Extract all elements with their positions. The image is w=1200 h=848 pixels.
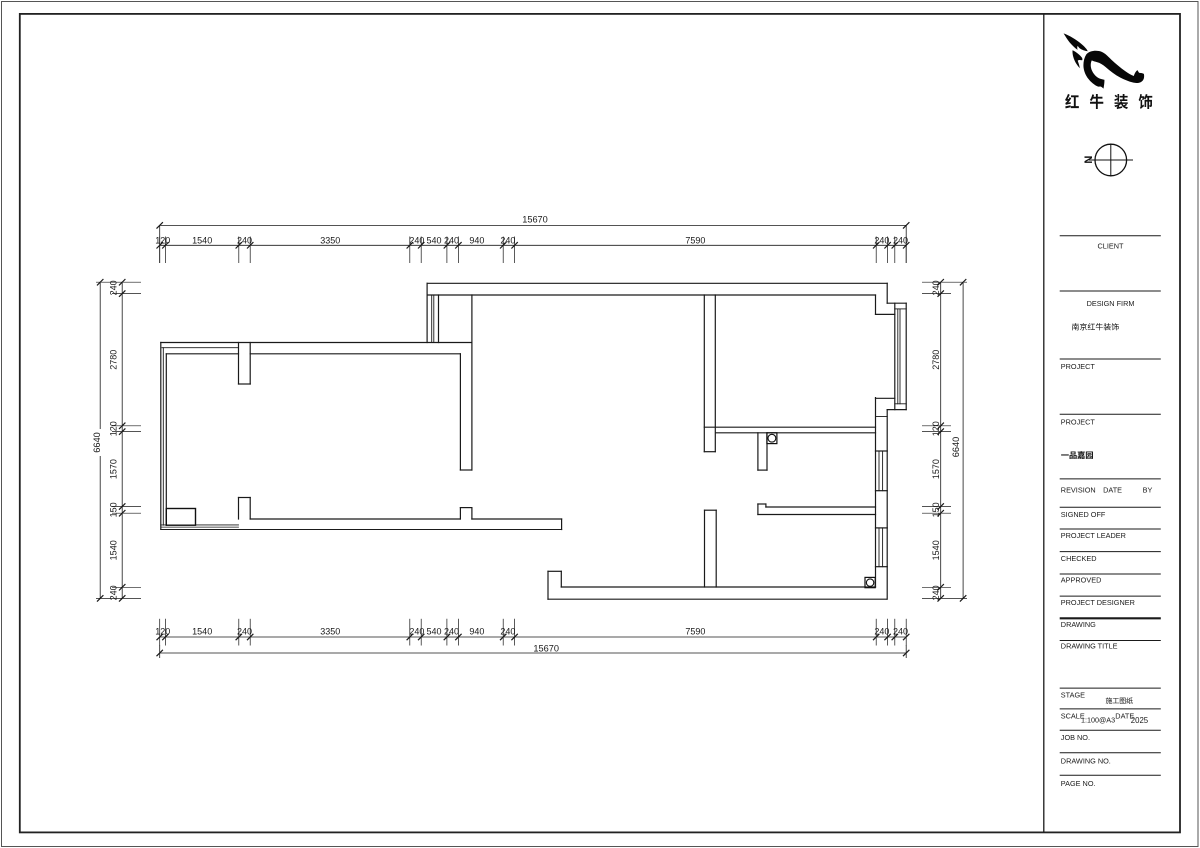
svg-text:15670: 15670 [533, 643, 559, 653]
svg-text:240: 240 [931, 585, 941, 600]
svg-text:7590: 7590 [685, 235, 705, 245]
svg-text:1570: 1570 [931, 459, 941, 479]
svg-text:240: 240 [893, 235, 908, 245]
svg-text:240: 240 [874, 627, 889, 637]
svg-text:BY: BY [1143, 485, 1153, 494]
svg-text:240: 240 [109, 280, 119, 295]
svg-text:REVISION: REVISION [1061, 485, 1096, 494]
svg-text:150: 150 [931, 502, 941, 517]
svg-text:120: 120 [155, 627, 170, 637]
svg-text:DRAWING: DRAWING [1061, 620, 1096, 629]
svg-text:540: 540 [426, 235, 441, 245]
svg-text:7590: 7590 [685, 627, 705, 637]
svg-text:240: 240 [874, 235, 889, 245]
svg-text:1570: 1570 [109, 459, 119, 479]
svg-text:3350: 3350 [320, 235, 340, 245]
svg-text:PROJECT: PROJECT [1061, 362, 1096, 371]
svg-text:2780: 2780 [109, 350, 119, 370]
svg-text:120: 120 [155, 235, 170, 245]
svg-text:1540: 1540 [192, 627, 212, 637]
svg-text:APPROVED: APPROVED [1061, 575, 1102, 584]
svg-text:15670: 15670 [522, 215, 548, 225]
svg-text:CHECKED: CHECKED [1061, 554, 1097, 563]
svg-text:240: 240 [500, 627, 515, 637]
svg-text:JOB NO.: JOB NO. [1061, 733, 1090, 742]
svg-text:1540: 1540 [931, 540, 941, 560]
svg-text:240: 240 [444, 235, 459, 245]
svg-text:120: 120 [931, 421, 941, 436]
svg-text:940: 940 [469, 235, 484, 245]
svg-text:PROJECT DESIGNER: PROJECT DESIGNER [1061, 598, 1135, 607]
svg-text:6640: 6640 [92, 432, 102, 452]
svg-text:DATE: DATE [1103, 485, 1122, 494]
svg-text:DESIGN FIRM: DESIGN FIRM [1087, 299, 1135, 308]
svg-text:240: 240 [893, 627, 908, 637]
svg-text:240: 240 [444, 627, 459, 637]
svg-text:240: 240 [409, 235, 424, 245]
svg-text:1540: 1540 [192, 235, 212, 245]
svg-text:SIGNED OFF: SIGNED OFF [1061, 510, 1106, 519]
svg-text:3350: 3350 [320, 627, 340, 637]
svg-text:DRAWING TITLE: DRAWING TITLE [1061, 641, 1118, 650]
svg-text:2780: 2780 [931, 350, 941, 370]
svg-text:PAGE NO.: PAGE NO. [1061, 779, 1096, 788]
svg-text:120: 120 [109, 421, 119, 436]
svg-text:240: 240 [931, 280, 941, 295]
svg-text:6640: 6640 [951, 437, 961, 457]
svg-text:240: 240 [109, 585, 119, 600]
svg-text:240: 240 [237, 235, 252, 245]
svg-text:STAGE: STAGE [1061, 690, 1085, 699]
svg-text:1:100@A3: 1:100@A3 [1081, 716, 1115, 725]
svg-text:540: 540 [426, 627, 441, 637]
svg-text:940: 940 [469, 627, 484, 637]
svg-text:2025: 2025 [1131, 716, 1149, 725]
svg-text:PROJECT: PROJECT [1061, 418, 1096, 427]
svg-text:150: 150 [109, 502, 119, 517]
svg-text:1540: 1540 [109, 540, 119, 560]
svg-text:DRAWING NO.: DRAWING NO. [1061, 756, 1111, 765]
svg-text:240: 240 [500, 235, 515, 245]
svg-text:240: 240 [409, 627, 424, 637]
svg-text:PROJECT LEADER: PROJECT LEADER [1061, 531, 1126, 540]
svg-text:CLIENT: CLIENT [1098, 242, 1124, 251]
svg-text:240: 240 [237, 627, 252, 637]
svg-text:N: N [1083, 156, 1095, 164]
